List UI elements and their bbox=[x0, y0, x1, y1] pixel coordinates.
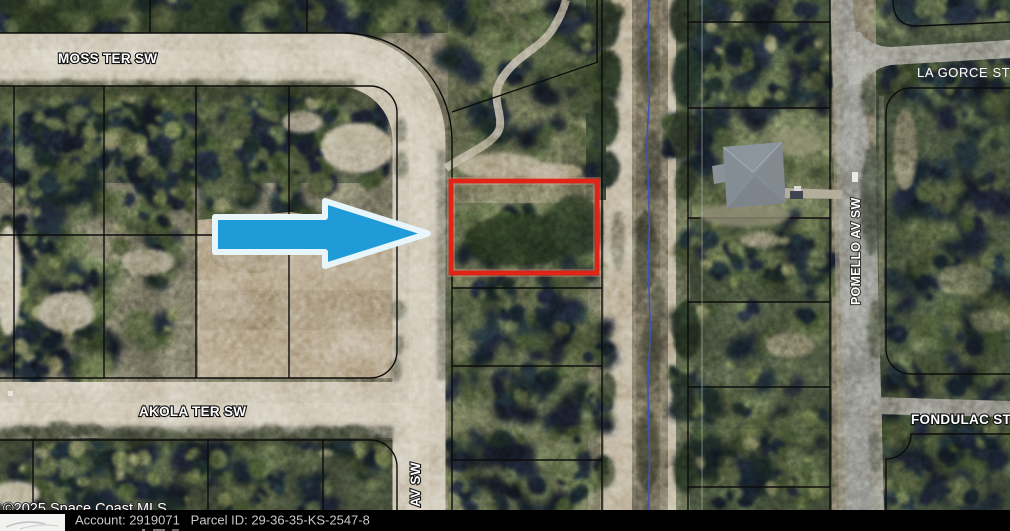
svg-text:MOSS TER SW: MOSS TER SW bbox=[58, 51, 157, 66]
svg-text:Account: 2919071 Parcel ID:: Account: 2919071 Parcel ID: 29-36-35-KS-… bbox=[75, 513, 370, 528]
svg-text:AKOLA TER SW: AKOLA TER SW bbox=[139, 404, 246, 419]
svg-text:FONDULAC ST: FONDULAC ST bbox=[911, 412, 1010, 427]
svg-text:AV SW: AV SW bbox=[408, 462, 423, 507]
svg-text:LA GORCE ST: LA GORCE ST bbox=[917, 65, 1010, 80]
svg-text:POMELLO AV SW: POMELLO AV SW bbox=[849, 198, 863, 305]
